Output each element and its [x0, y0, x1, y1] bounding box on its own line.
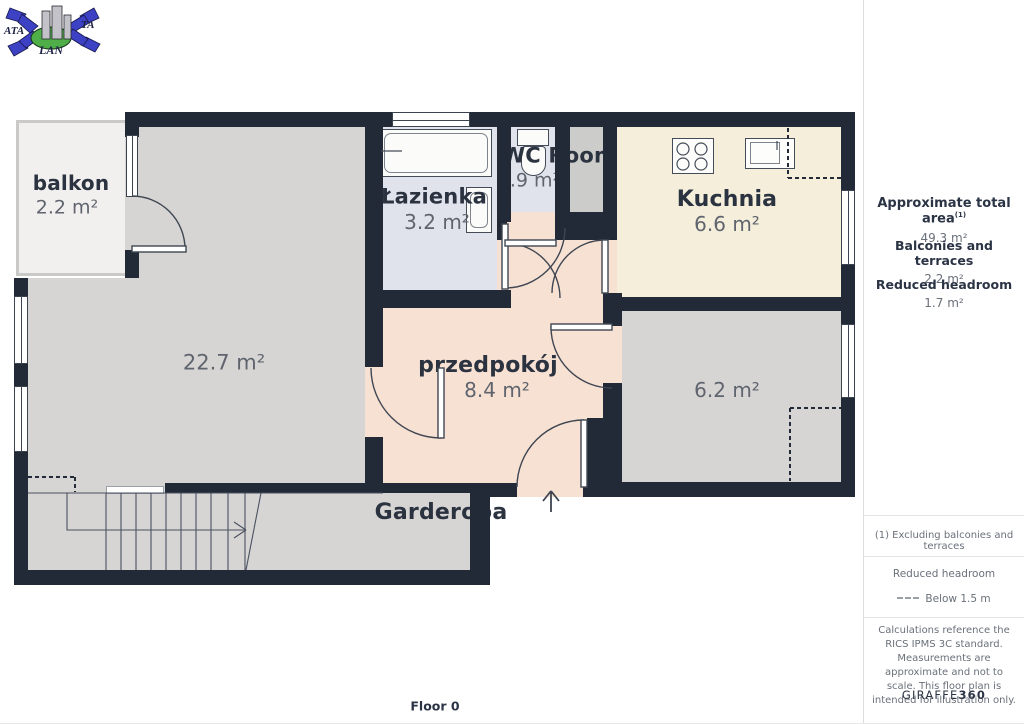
- total-area-label: Approximate total area(1): [864, 196, 1024, 226]
- wall-top: [125, 112, 855, 127]
- floor-living-top: [125, 127, 365, 289]
- floor-shaft: [570, 127, 603, 212]
- wall-hall62-stub-bottom: [603, 383, 622, 497]
- legend-title: Reduced headroom: [864, 568, 1024, 580]
- logo-text-right: TA: [81, 19, 94, 31]
- sidebar-divider: [864, 515, 1024, 516]
- brand-name: GIRAFFE: [902, 688, 959, 702]
- window-left-2: [14, 386, 28, 452]
- wall-central-upper: [365, 112, 383, 367]
- floor-living: [28, 278, 365, 493]
- window-kitchen-right: [841, 190, 855, 265]
- label-przedpokoj-name: przedpokój: [418, 355, 558, 377]
- wall-wc-shaft: [555, 127, 570, 218]
- label-kuchnia-area: 6.6 m²: [694, 214, 760, 234]
- brand-logo: GIRAFFE360: [864, 684, 1024, 703]
- wall-entrance-right-seg: [583, 483, 605, 497]
- wall-right: [841, 127, 855, 497]
- footnote-text: (1) Excluding balconies and terraces: [864, 530, 1024, 552]
- floorplan-canvas: balkon 2.2 m² 22.7 m² Łazienka 3.2 m² WC…: [0, 0, 1024, 724]
- floor-room62-doorway: [603, 326, 622, 383]
- logo-buildings: [42, 6, 71, 39]
- wall-bath-wc: [497, 127, 511, 222]
- reduced-headroom-value: 1.7 m²: [864, 296, 1024, 310]
- label-kuchnia-name: Kuchnia: [677, 189, 777, 211]
- wall-wc-band-right: [555, 212, 617, 240]
- bathtub: [380, 129, 492, 177]
- window-balcony-wall: [126, 135, 138, 197]
- floor-kitchen-doorway: [603, 240, 617, 293]
- reduced-headroom-label: Reduced headroom: [864, 277, 1024, 292]
- window-room62-right: [841, 324, 855, 398]
- floor-level-label: Floor 0: [410, 699, 459, 714]
- wall-hall62-stub-top: [603, 293, 622, 326]
- window-top-bathroom: [392, 112, 470, 127]
- sidebar-divider: [864, 617, 1024, 618]
- label-lazienka-name: Łazienka: [381, 187, 487, 208]
- label-room62-area: 6.2 m²: [694, 380, 760, 400]
- balconies-label: Balconies and terraces: [864, 238, 1024, 268]
- dashed-line-swatch: [897, 597, 919, 599]
- wall-wc-band-left: [497, 212, 507, 240]
- floor-entry-threshold: [507, 483, 593, 497]
- info-sidebar: Approximate total area(1) 49.3 m² Balcon…: [863, 0, 1024, 724]
- legend-block: Reduced headroom Below 1.5 m: [864, 568, 1024, 606]
- label-balkon-name: balkon: [33, 173, 110, 193]
- stove: [672, 138, 714, 174]
- label-living-area: 22.7 m²: [183, 353, 265, 374]
- legend-value: Below 1.5 m: [925, 593, 990, 605]
- wall-stairs-band: [165, 483, 470, 493]
- kitchen-sink: [745, 138, 795, 169]
- wall-balcony-upper: [125, 112, 139, 137]
- wall-bottom: [14, 570, 490, 585]
- label-przedpokoj-area: 8.4 m²: [464, 380, 530, 400]
- logo-text-bottom: LAN: [38, 43, 64, 57]
- logo-text-left: ATA: [3, 25, 24, 37]
- wall-bath-bottom: [365, 290, 511, 308]
- wall-bottom-right: [605, 482, 855, 497]
- total-area-footnote-marker: (1): [955, 211, 966, 219]
- brand-suffix: 360: [958, 688, 986, 702]
- stair-landing: [106, 486, 164, 494]
- label-lazienka-area: 3.2 m²: [404, 212, 470, 232]
- wall-kitchen-bottom: [613, 297, 855, 311]
- label-balkon-area: 2.2 m²: [36, 199, 98, 218]
- company-logo: ATA TA LAN: [2, 2, 102, 60]
- window-left-1: [14, 296, 28, 364]
- sidebar-divider: [864, 556, 1024, 557]
- reduced-headroom-block: Reduced headroom 1.7 m²: [864, 277, 1024, 310]
- wall-balcony-lower: [125, 250, 139, 278]
